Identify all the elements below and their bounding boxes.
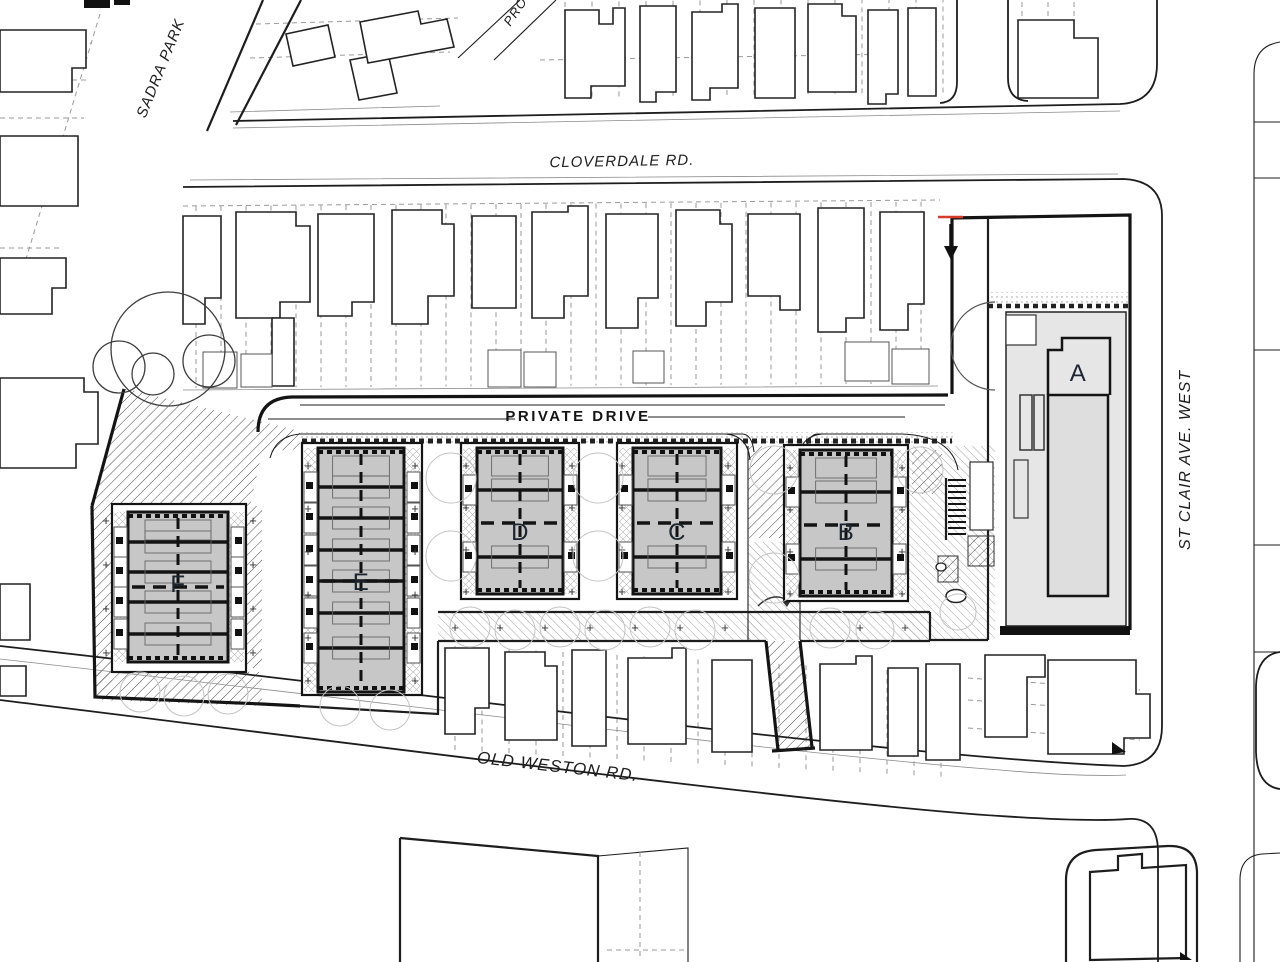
block-label-e: E (353, 569, 370, 596)
plus-marker: + (304, 587, 312, 602)
street-label-prospect-partial: PRO (500, 0, 530, 29)
plus-marker: + (304, 544, 312, 559)
street-label-cloverdale: CLOVERDALE RD. (549, 152, 694, 172)
street-label-st-clair: ST CLAIR AVE. WEST (1177, 370, 1194, 550)
street-label-private-drive: PRIVATE DRIVE (505, 408, 650, 425)
plus-marker: + (249, 645, 257, 660)
plus-marker: + (898, 544, 906, 559)
plus-marker: + (249, 557, 257, 572)
plus-marker: + (898, 502, 906, 517)
plus-marker: + (304, 673, 312, 688)
plus-marker: + (411, 630, 419, 645)
block-label-d: D (511, 519, 529, 546)
street-label-sadra-park: SADRA PARK (133, 16, 188, 120)
plus-marker: + (102, 557, 110, 572)
plus-marker: + (676, 620, 684, 635)
plus-marker: + (451, 620, 459, 635)
plus-marker: + (724, 542, 732, 557)
plus-marker: + (462, 584, 470, 599)
plus-marker: + (618, 584, 626, 599)
site-plan-canvas: ++++++++++++++++++++++++++++++++++++++++… (0, 0, 1280, 962)
plus-marker: + (462, 500, 470, 515)
plus-marker: + (568, 500, 576, 515)
plus-marker: + (724, 500, 732, 515)
garage-outlines (203, 342, 929, 388)
plus-marker: + (568, 458, 576, 473)
plus-marker: + (249, 601, 257, 616)
tree-cluster-icon (93, 292, 235, 406)
plus-marker: + (724, 584, 732, 599)
block-label-c: C (668, 519, 686, 546)
plus-marker: + (586, 620, 594, 635)
plus-marker: + (304, 630, 312, 645)
plus-marker: + (496, 620, 504, 635)
south-parcels (400, 838, 1197, 962)
plus-marker: + (411, 673, 419, 688)
plus-marker: + (568, 542, 576, 557)
plus-marker: + (249, 513, 257, 528)
plus-marker: + (304, 501, 312, 516)
plus-marker: + (618, 500, 626, 515)
plus-marker: + (898, 586, 906, 601)
plus-marker: + (724, 458, 732, 473)
plus-marker: + (786, 502, 794, 517)
plus-marker: + (786, 460, 794, 475)
plus-marker: + (631, 620, 639, 635)
plus-marker: + (568, 584, 576, 599)
plus-marker: + (102, 513, 110, 528)
site-plan-drawing: ++++++++++++++++++++++++++++++++++++++++… (0, 0, 1280, 962)
block-label-f: F (170, 571, 185, 598)
plus-marker: + (541, 620, 549, 635)
plus-marker: + (721, 620, 729, 635)
plus-marker: + (462, 542, 470, 557)
plus-marker: + (898, 460, 906, 475)
plus-marker: + (411, 544, 419, 559)
plus-marker: + (411, 587, 419, 602)
plus-marker: + (102, 645, 110, 660)
block-label-a: A (1070, 360, 1087, 387)
plus-marker: + (411, 458, 419, 473)
block-label-b: B (838, 519, 855, 546)
plus-marker: + (102, 601, 110, 616)
plus-marker: + (901, 620, 909, 635)
plus-marker: + (304, 458, 312, 473)
plus-marker: + (411, 501, 419, 516)
street-label-old-weston: OLD WESTON RD. (476, 748, 639, 785)
